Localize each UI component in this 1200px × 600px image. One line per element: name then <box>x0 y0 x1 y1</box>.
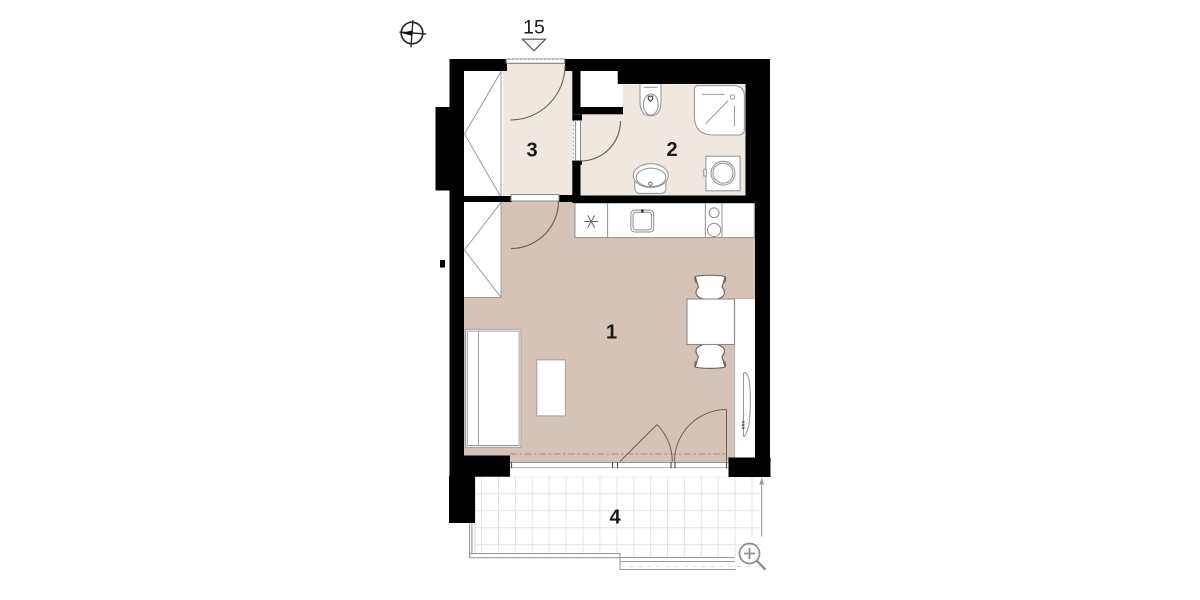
svg-text:4: 4 <box>609 507 621 529</box>
svg-text:1: 1 <box>606 322 617 344</box>
svg-text:15: 15 <box>523 16 545 38</box>
svg-text:3: 3 <box>526 140 537 162</box>
svg-text:2: 2 <box>666 139 677 161</box>
